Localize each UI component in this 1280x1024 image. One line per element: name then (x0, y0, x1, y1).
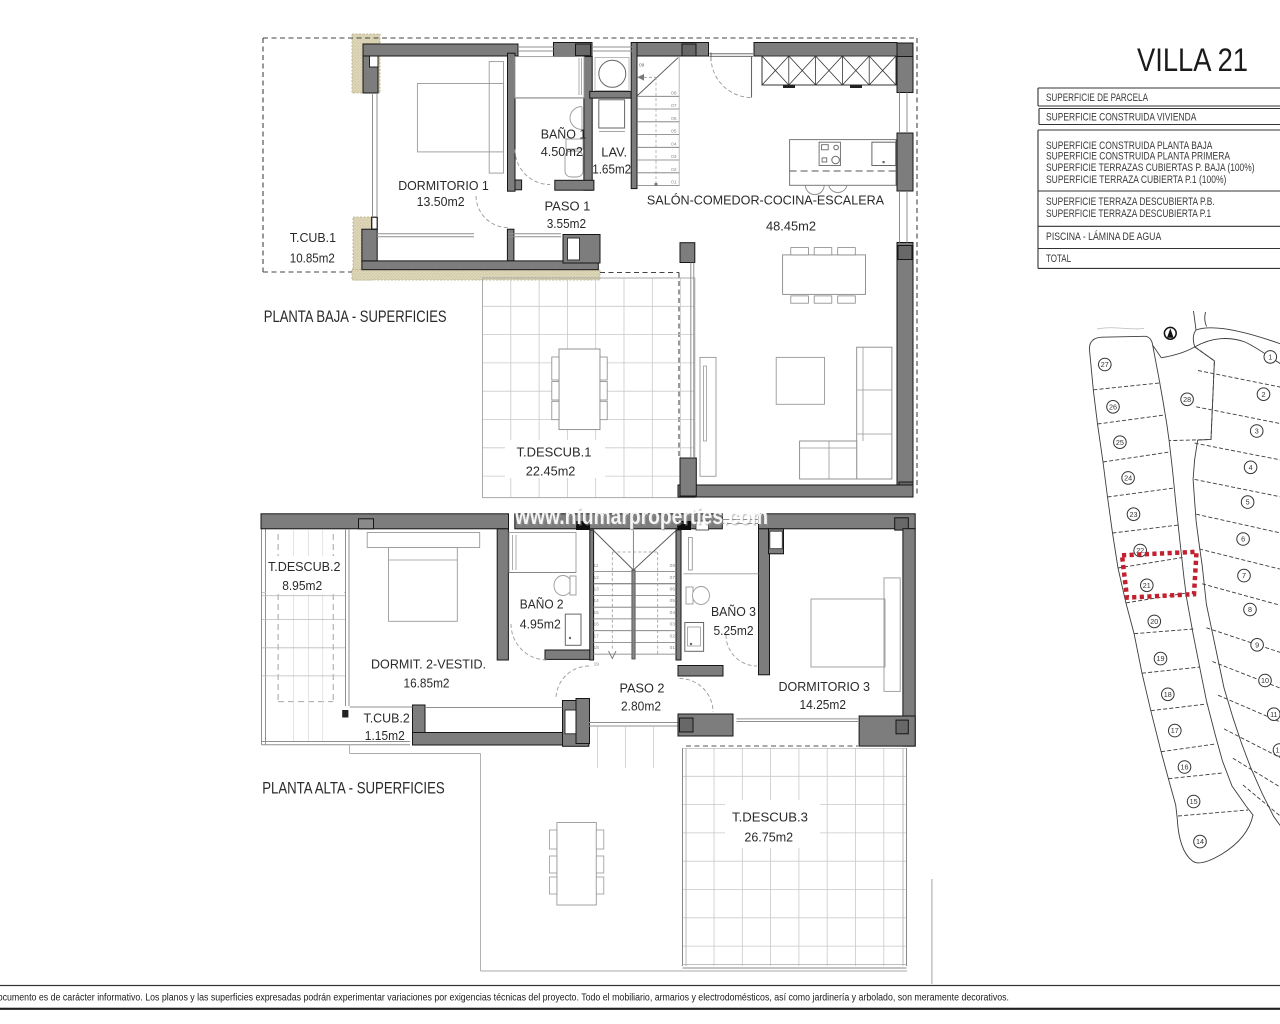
svg-text:22.45m2: 22.45m2 (526, 464, 576, 479)
svg-text:PASO 1: PASO 1 (545, 199, 591, 214)
svg-text:3: 3 (1255, 427, 1259, 436)
svg-text:26.75m2: 26.75m2 (744, 830, 793, 845)
svg-text:19: 19 (594, 661, 600, 667)
svg-text:1.15m2: 1.15m2 (365, 728, 405, 743)
svg-text:3.55m2: 3.55m2 (547, 216, 586, 231)
svg-text:T.CUB.2: T.CUB.2 (364, 711, 410, 726)
svg-text:2.80m2: 2.80m2 (621, 698, 661, 713)
svg-text:20: 20 (1150, 617, 1158, 626)
svg-text:DORMITORIO 1: DORMITORIO 1 (398, 178, 489, 193)
svg-text:1: 1 (1268, 353, 1272, 362)
svg-text:17: 17 (594, 633, 600, 639)
svg-text:BAÑO 3: BAÑO 3 (711, 604, 756, 619)
svg-text:8.95m2: 8.95m2 (282, 578, 322, 593)
svg-text:6: 6 (1241, 535, 1245, 544)
svg-text:09: 09 (639, 63, 645, 69)
svg-text:24: 24 (1124, 474, 1132, 483)
svg-text:03: 03 (670, 622, 676, 628)
svg-text:9: 9 (1255, 640, 1259, 649)
svg-text:15: 15 (594, 610, 600, 616)
svg-text:26: 26 (1109, 402, 1117, 411)
svg-text:PLANTA ALTA - SUPERFICIES: PLANTA ALTA - SUPERFICIES (262, 779, 445, 798)
svg-text:08: 08 (670, 563, 676, 569)
svg-text:PLANTA BAJA - SUPERFICIES: PLANTA BAJA - SUPERFICIES (264, 307, 447, 326)
svg-text:11: 11 (594, 563, 599, 569)
svg-text:5: 5 (1246, 498, 1250, 507)
svg-text:13: 13 (594, 587, 600, 593)
svg-text:4.95m2: 4.95m2 (520, 617, 561, 632)
svg-text:15: 15 (1190, 797, 1198, 806)
svg-text:4.50m2: 4.50m2 (541, 144, 583, 159)
svg-text:PASO 2: PASO 2 (620, 680, 665, 695)
svg-text:16.85m2: 16.85m2 (404, 676, 450, 691)
svg-text:TOTAL: TOTAL (1046, 253, 1071, 265)
svg-text:19: 19 (1157, 654, 1165, 663)
svg-text:05: 05 (670, 598, 676, 604)
svg-text:LAV.: LAV. (601, 145, 627, 160)
svg-text:14: 14 (594, 598, 600, 604)
svg-text:7: 7 (1242, 571, 1246, 580)
svg-text:BAÑO 1: BAÑO 1 (541, 127, 587, 142)
svg-text:DORMIT. 2-VESTID.: DORMIT. 2-VESTID. (371, 657, 486, 672)
svg-text:SALÓN-COMEDOR-COCINA-ESCALERA: SALÓN-COMEDOR-COCINA-ESCALERA (647, 193, 885, 208)
svg-text:06: 06 (671, 116, 677, 122)
svg-text:02: 02 (671, 167, 677, 173)
svg-text:SUPERFICIE TERRAZA CUBIERTA P.: SUPERFICIE TERRAZA CUBIERTA P.1 (100%) (1046, 174, 1226, 186)
svg-text:4: 4 (1249, 463, 1253, 472)
svg-text:T.DESCUB.1: T.DESCUB.1 (517, 445, 592, 460)
svg-text:01: 01 (671, 180, 677, 186)
svg-text:23: 23 (1130, 510, 1138, 519)
svg-text:07: 07 (671, 103, 677, 109)
svg-text:BAÑO 2: BAÑO 2 (520, 597, 564, 612)
svg-text:10.85m2: 10.85m2 (290, 250, 335, 265)
svg-text:SUPERFICIE TERRAZA DESCUBIERTA: SUPERFICIE TERRAZA DESCUBIERTA P.1 (1046, 208, 1211, 220)
svg-text:SUPERFICIE CONSTRUIDA VIVIENDA: SUPERFICIE CONSTRUIDA VIVIENDA (1046, 112, 1197, 124)
svg-text:05: 05 (671, 129, 677, 135)
svg-text:T.DESCUB.3: T.DESCUB.3 (732, 810, 808, 825)
svg-text:10: 10 (1261, 676, 1269, 685)
svg-text:02: 02 (670, 633, 676, 639)
svg-text:12: 12 (1276, 746, 1280, 755)
svg-text:03: 03 (671, 154, 677, 160)
svg-text:18: 18 (1164, 690, 1172, 699)
svg-text:SUPERFICIE TERRAZA DESCUBIERTA: SUPERFICIE TERRAZA DESCUBIERTA P.B. (1046, 196, 1215, 208)
svg-text:SUPERFICIE CONSTRUIDA PLANTA P: SUPERFICIE CONSTRUIDA PLANTA PRIMERA (1046, 151, 1231, 163)
svg-text:SUPERFICIE DE PARCELA: SUPERFICIE DE PARCELA (1046, 92, 1148, 104)
svg-text:17: 17 (1171, 726, 1179, 735)
svg-text:T.CUB.1: T.CUB.1 (290, 230, 336, 245)
svg-text:08: 08 (671, 91, 677, 97)
svg-text:28: 28 (1183, 395, 1191, 404)
svg-text:16: 16 (594, 622, 600, 628)
svg-text:04: 04 (670, 610, 676, 616)
svg-text:1.65m2: 1.65m2 (592, 161, 631, 176)
svg-text:PISCINA - LÁMINA DE AGUA: PISCINA - LÁMINA DE AGUA (1046, 230, 1162, 243)
svg-text:13.50m2: 13.50m2 (417, 194, 465, 209)
svg-text:04: 04 (671, 142, 677, 148)
svg-text:21: 21 (1143, 581, 1151, 590)
svg-text:8: 8 (1248, 605, 1252, 614)
svg-text:te documento es de carácter in: te documento es de carácter informativo.… (0, 993, 1009, 1004)
svg-text:DORMITORIO 3: DORMITORIO 3 (779, 679, 871, 694)
svg-text:48.45m2: 48.45m2 (766, 219, 816, 234)
svg-text:SUPERFICIE TERRAZAS CUBIERTAS: SUPERFICIE TERRAZAS CUBIERTAS P. BAJA (1… (1046, 162, 1255, 174)
svg-text:01: 01 (670, 645, 676, 651)
svg-text:14.25m2: 14.25m2 (800, 697, 847, 712)
svg-text:www.niumarproperties.com: www.niumarproperties.com (514, 503, 768, 529)
svg-text:07: 07 (670, 575, 676, 581)
svg-text:25: 25 (1116, 438, 1124, 447)
svg-text:16: 16 (1181, 763, 1189, 772)
svg-text:14: 14 (1196, 837, 1204, 846)
svg-text:12: 12 (594, 575, 600, 581)
svg-text:11: 11 (1270, 710, 1277, 719)
svg-text:T.DESCUB.2: T.DESCUB.2 (268, 559, 341, 574)
svg-text:2: 2 (1262, 390, 1266, 399)
svg-text:27: 27 (1101, 360, 1109, 369)
svg-text:18: 18 (594, 645, 600, 651)
svg-text:VILLA 21: VILLA 21 (1137, 42, 1248, 78)
svg-text:5.25m2: 5.25m2 (714, 623, 754, 638)
svg-text:06: 06 (670, 587, 676, 593)
